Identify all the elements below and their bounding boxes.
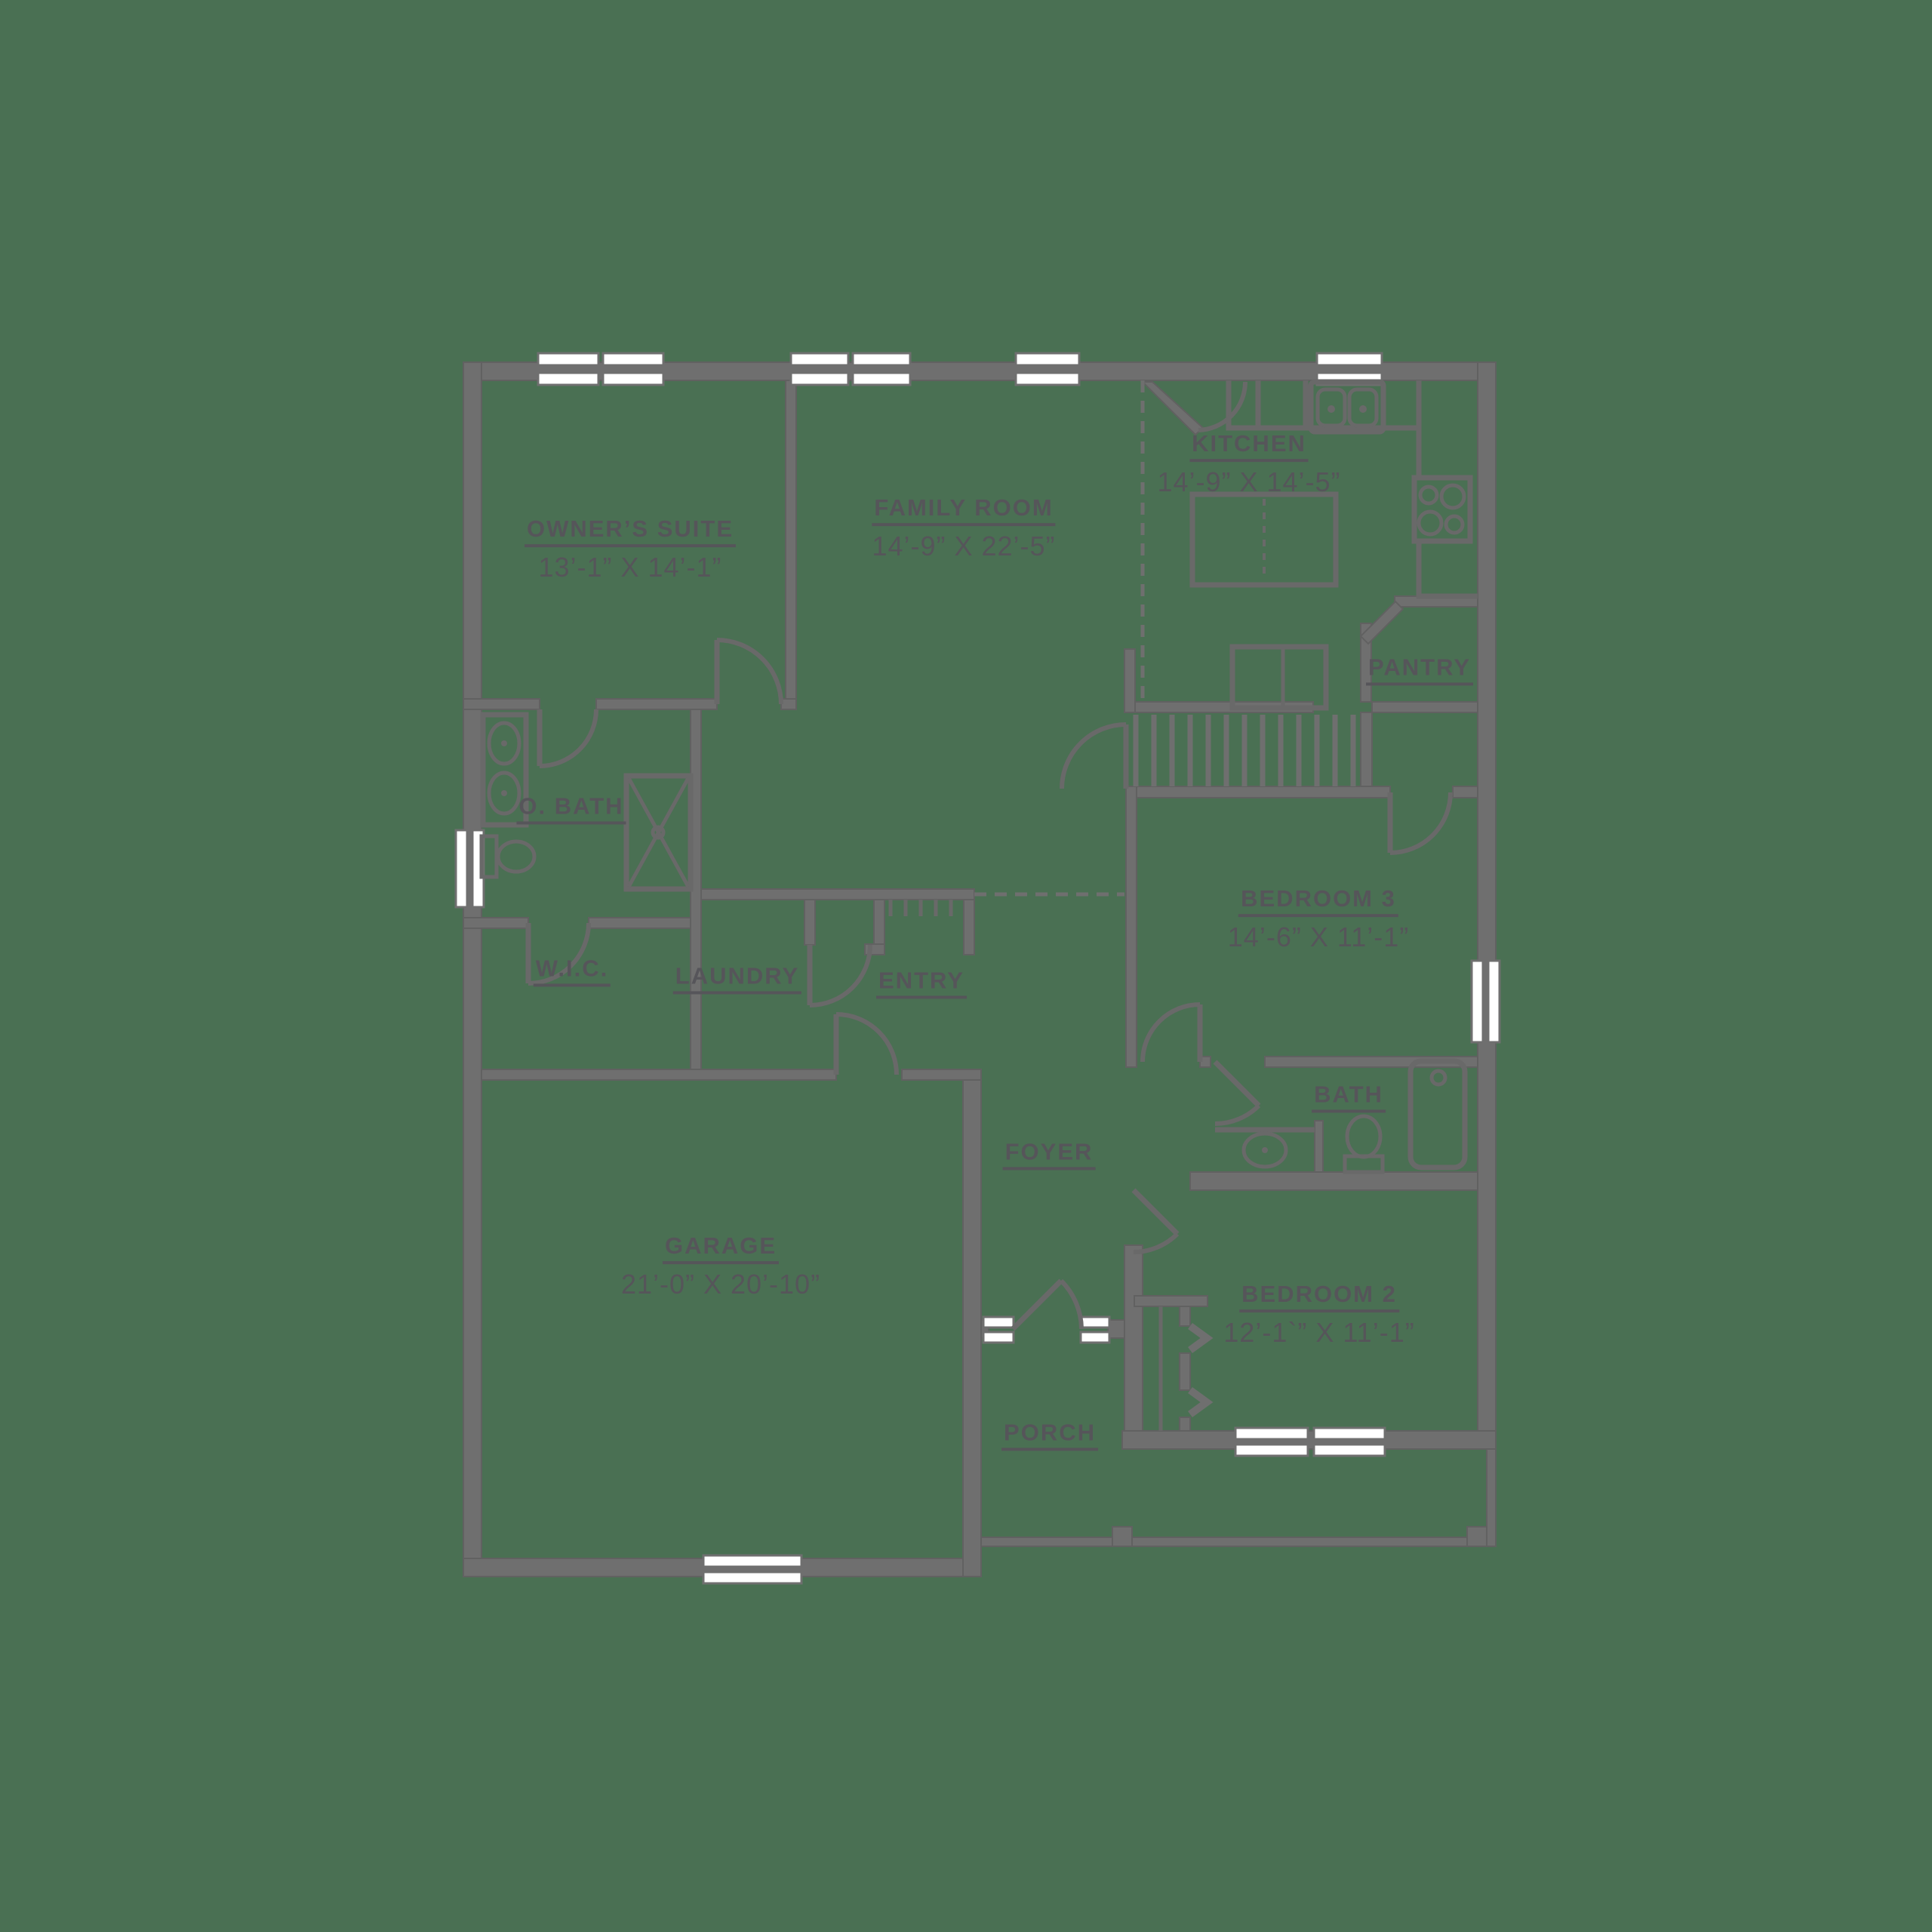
wall-hall-south	[701, 889, 974, 900]
wall-nook-left	[1124, 649, 1135, 712]
shower-glass-marks	[629, 778, 688, 887]
wall-closet2-right	[1180, 1353, 1190, 1390]
kitchen-counter-top	[1229, 380, 1419, 428]
window	[538, 353, 598, 365]
room-name: ENTRY	[876, 968, 967, 998]
wall-stairs-top	[1372, 702, 1478, 712]
door-swing-arc	[810, 945, 870, 1005]
door-swing-arc	[1390, 792, 1451, 853]
window	[1317, 353, 1382, 365]
wall-closet2-top	[1134, 1296, 1207, 1306]
door-leaf	[1215, 1062, 1259, 1106]
window	[603, 353, 663, 365]
porch-edge-right	[1487, 1449, 1496, 1546]
kitchen-corner-door-arc	[1198, 382, 1245, 430]
sink-drain	[1262, 1147, 1268, 1153]
front-door-leaf	[1013, 1281, 1061, 1329]
stairs	[1136, 715, 1353, 786]
room-name: GARAGE	[663, 1233, 779, 1264]
bathtub-icon	[1411, 1061, 1465, 1168]
window	[1081, 1317, 1109, 1327]
door-leaf	[1134, 1190, 1177, 1234]
door-swing-arc	[1143, 1004, 1200, 1062]
sink-drain	[1359, 405, 1367, 413]
window	[791, 373, 848, 385]
room-label-o-bath: O. BATH	[516, 793, 626, 824]
wall-stairs-bottom	[1453, 786, 1478, 798]
window	[853, 373, 910, 385]
window	[603, 373, 663, 385]
builtin-cubby	[1232, 647, 1326, 708]
porch-post	[1467, 1527, 1487, 1546]
room-dims: 14’-9” X 22’-5”	[872, 531, 1055, 561]
wall-suite-bottom	[596, 699, 717, 709]
room-label-porch: PORCH	[1001, 1420, 1098, 1451]
room-dims: 14’-6” X 11’-1”	[1228, 922, 1409, 952]
window	[1472, 961, 1483, 1042]
door-swing-arc	[540, 709, 596, 766]
bifold-door-chevron	[1190, 1390, 1207, 1414]
room-label-entry: ENTRY	[876, 968, 967, 998]
window	[1235, 1444, 1308, 1456]
door-swing-arc	[836, 1014, 897, 1075]
room-label-foyer: FOYER	[1003, 1139, 1096, 1170]
room-name: PORCH	[1001, 1420, 1098, 1451]
room-label-kitchen: KITCHEN 14’-9” X 14’-5”	[1157, 431, 1340, 497]
window	[853, 353, 910, 365]
wall-closet2-right	[1180, 1417, 1190, 1431]
window	[1016, 373, 1079, 385]
room-label-pantry: PANTRY	[1366, 654, 1473, 685]
window	[983, 1332, 1014, 1343]
window	[1081, 1332, 1109, 1343]
wall-bedroom3-left	[1126, 786, 1137, 1067]
wall-wic-top	[463, 918, 528, 928]
window	[1235, 1428, 1308, 1439]
sink-drain	[501, 790, 507, 796]
room-name: FAMILY ROOM	[872, 495, 1055, 526]
room-name: KITCHEN	[1189, 431, 1309, 462]
window	[983, 1317, 1014, 1327]
sink-drain	[1327, 405, 1335, 413]
window	[1488, 961, 1500, 1042]
porch-edge-bottom	[981, 1537, 1496, 1546]
wall-garage-top	[902, 1069, 981, 1080]
window	[1314, 1444, 1385, 1456]
window	[791, 353, 848, 365]
room-label-laundry: LAUNDRY	[673, 963, 801, 994]
room-name: BEDROOM 2	[1239, 1281, 1399, 1312]
window	[703, 1555, 801, 1567]
room-name: BEDROOM 3	[1238, 886, 1398, 917]
door-swing-arc	[717, 640, 781, 704]
room-label-family-room: FAMILY ROOM 14’-9” X 22’-5”	[872, 495, 1055, 561]
window	[456, 830, 467, 907]
room-dims: 13’-1” X 14’-1”	[538, 552, 721, 583]
bifold-door-chevron	[1190, 1326, 1207, 1350]
dashed-boundaries	[974, 380, 1143, 894]
wall-vanity-divider	[1315, 1121, 1323, 1172]
hall-bath-fixtures	[1215, 1061, 1465, 1172]
wall-laundry-entry	[804, 900, 815, 945]
wall-right	[1478, 362, 1496, 1449]
toilet-bowl	[1347, 1116, 1380, 1157]
room-name: W.I.C.	[534, 955, 611, 986]
room-dims: 12’-1`” X 11’-1”	[1223, 1318, 1414, 1348]
wall-stairs-right	[1361, 712, 1372, 786]
room-label-bedroom3: BEDROOM 3 14’-6” X 11’-1”	[1228, 886, 1409, 952]
floor-plan-drawing	[0, 0, 1932, 1932]
room-dims: 14’-9” X 14’-5”	[1157, 467, 1340, 497]
wall-suite-bottom	[463, 699, 540, 709]
wall-left	[463, 362, 481, 1577]
porch-post	[1112, 1527, 1132, 1546]
room-name: BATH	[1312, 1081, 1386, 1112]
room-name: LAUNDRY	[673, 963, 801, 994]
room-label-bath: BATH	[1312, 1081, 1386, 1112]
floor-plan: OWNER’S SUITE 13’-1” X 14’-1” FAMILY ROO…	[0, 0, 1932, 1932]
stair-treads	[1136, 715, 1353, 786]
door-swing-arc	[1215, 1106, 1259, 1124]
wall-entry-closet-right	[964, 900, 974, 955]
wall-suite-right	[786, 380, 796, 709]
entry-closet-rod-ticks	[891, 900, 951, 916]
room-name: PANTRY	[1366, 654, 1473, 685]
room-name: FOYER	[1003, 1139, 1096, 1170]
wall-bedroom2-top	[1190, 1172, 1478, 1190]
room-label-wic: W.I.C.	[534, 955, 611, 986]
room-dims: 21’-0” X 20’-10”	[621, 1269, 820, 1300]
window	[1016, 353, 1079, 365]
room-name: O. BATH	[516, 793, 626, 824]
room-label-garage: GARAGE 21’-0” X 20’-10”	[621, 1233, 820, 1300]
door-swing-arc	[1061, 1281, 1081, 1329]
room-name: OWNER’S SUITE	[525, 516, 736, 547]
tub-drain	[1432, 1071, 1445, 1084]
doors	[528, 640, 1451, 1329]
room-label-owners-suite: OWNER’S SUITE 13’-1” X 14’-1”	[525, 516, 736, 583]
wall-stairs-bottom	[1126, 786, 1390, 798]
wall-garage-right	[963, 1069, 981, 1577]
window	[703, 1572, 801, 1583]
door-swing-arc	[1062, 724, 1126, 789]
window	[538, 373, 598, 385]
toilet-bowl	[498, 841, 534, 872]
wall-garage-top	[481, 1069, 836, 1080]
wall-kitchen-corner-diagonal	[1143, 382, 1203, 435]
wall-bedroom2-left	[1124, 1245, 1143, 1431]
porch-structure	[981, 1449, 1496, 1546]
sink-drain	[501, 740, 507, 746]
wall-closet2-right	[1180, 1306, 1190, 1326]
window	[1314, 1428, 1385, 1439]
wall-wic-top	[589, 918, 691, 928]
room-label-bedroom2: BEDROOM 2 12’-1`” X 11’-1”	[1223, 1281, 1414, 1348]
